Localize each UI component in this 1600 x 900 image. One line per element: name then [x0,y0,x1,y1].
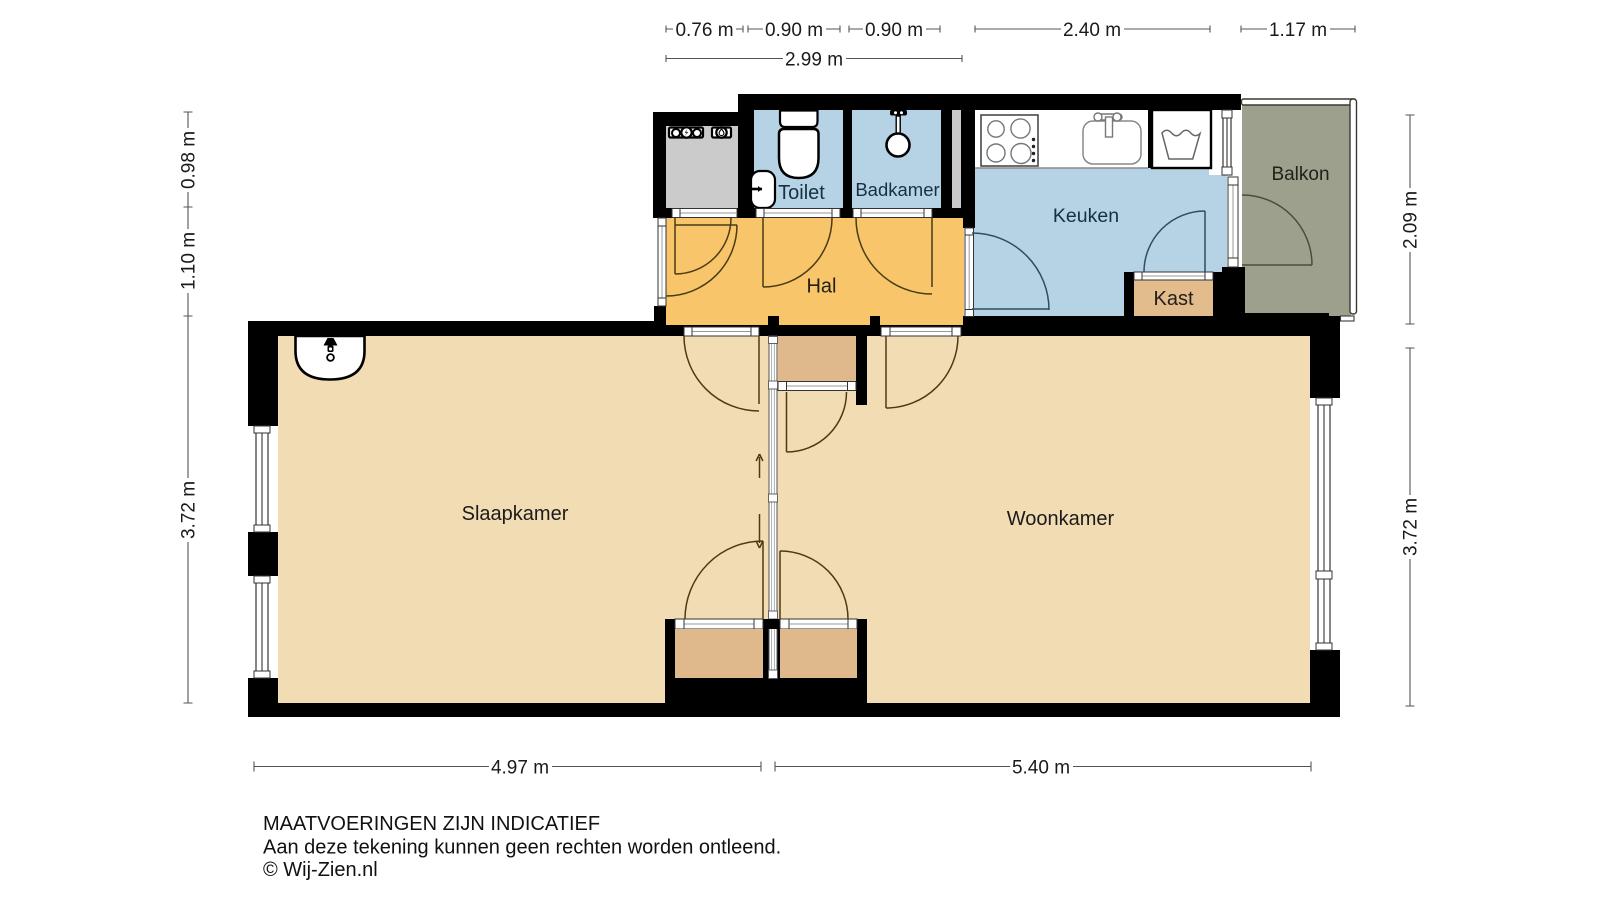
svg-text:2.99 m: 2.99 m [785,50,843,71]
svg-text:Hal: Hal [806,276,836,298]
svg-text:4.97 m: 4.97 m [491,758,549,779]
svg-text:© Wij-Zien.nl: © Wij-Zien.nl [263,859,378,881]
svg-text:1.10 m: 1.10 m [179,232,200,290]
svg-text:1.17 m: 1.17 m [1269,20,1327,41]
svg-text:MAATVOERINGEN ZIJN INDICATIEF: MAATVOERINGEN ZIJN INDICATIEF [263,813,600,835]
svg-text:Aan deze tekening kunnen geen: Aan deze tekening kunnen geen rechten wo… [263,837,781,859]
svg-text:0.76 m: 0.76 m [675,20,733,41]
svg-text:Keuken: Keuken [1053,205,1119,227]
svg-text:0.90 m: 0.90 m [765,20,823,41]
svg-text:Toilet: Toilet [778,182,825,204]
svg-text:3.72 m: 3.72 m [1401,498,1422,556]
svg-text:Slaapkamer: Slaapkamer [462,503,569,525]
svg-text:5.40 m: 5.40 m [1012,758,1070,779]
svg-text:2.40 m: 2.40 m [1063,20,1121,41]
svg-text:0.90 m: 0.90 m [865,20,923,41]
svg-text:Kast: Kast [1153,288,1193,310]
svg-text:Badkamer: Badkamer [855,179,939,200]
svg-text:3.72 m: 3.72 m [179,481,200,539]
svg-text:Balkon: Balkon [1271,164,1329,185]
svg-text:2.09 m: 2.09 m [1401,191,1422,249]
svg-text:0.98 m: 0.98 m [179,131,200,189]
svg-text:Woonkamer: Woonkamer [1007,508,1115,530]
